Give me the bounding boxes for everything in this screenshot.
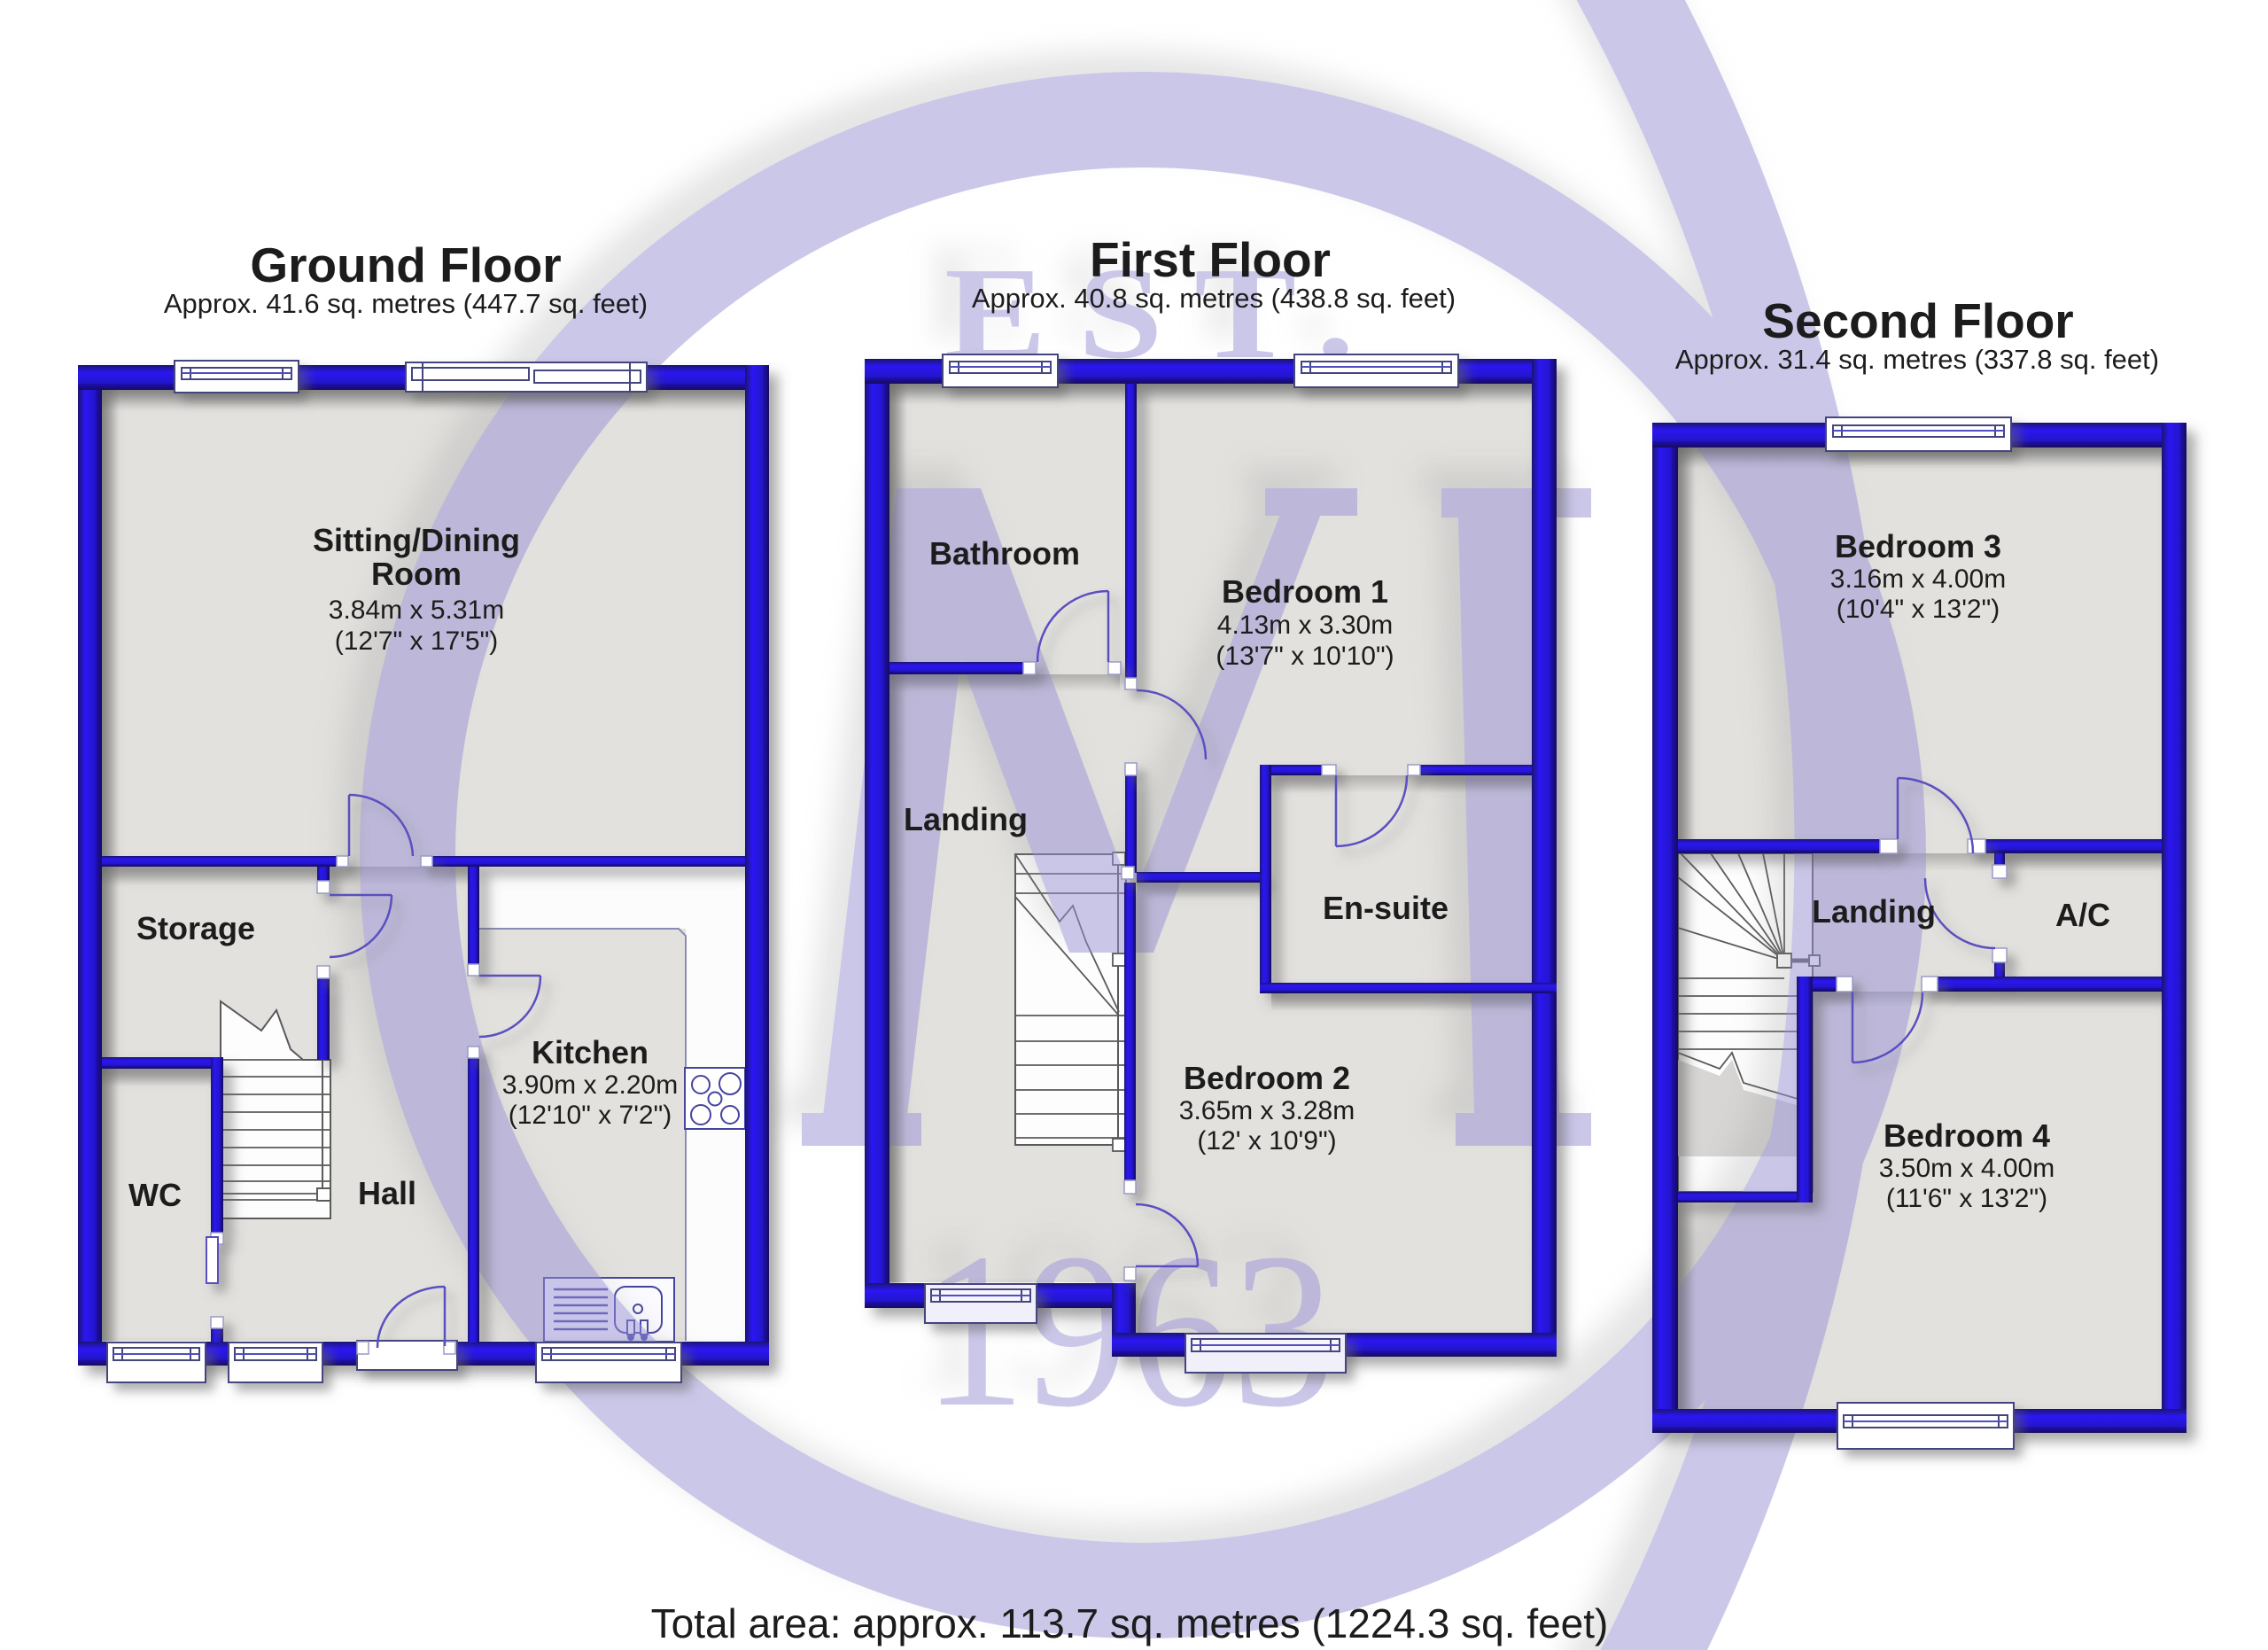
svg-text:(12'10" x 7'2"): (12'10" x 7'2") [509,1101,672,1130]
svg-text:3.65m x 3.28m: 3.65m x 3.28m [1179,1096,1355,1125]
svg-text:Storage: Storage [136,910,255,946]
svg-text:3.90m x 2.20m: 3.90m x 2.20m [502,1070,678,1100]
svg-text:Bedroom 2: Bedroom 2 [1184,1060,1350,1096]
svg-text:Room: Room [371,556,462,592]
svg-text:4.13m x 3.30m: 4.13m x 3.30m [1217,611,1393,640]
svg-text:En-suite: En-suite [1323,890,1449,926]
svg-text:Bedroom 3: Bedroom 3 [1835,528,2001,564]
svg-text:3.16m x 4.00m: 3.16m x 4.00m [1830,564,2006,594]
svg-text:(11'6" x 13'2"): (11'6" x 13'2") [1886,1184,2047,1213]
svg-text:Landing: Landing [1812,893,1936,930]
svg-text:3.84m x 5.31m: 3.84m x 5.31m [329,595,504,625]
svg-text:Bedroom 1: Bedroom 1 [1222,573,1388,610]
svg-text:(13'7" x 10'10"): (13'7" x 10'10") [1216,642,1394,671]
svg-text:Approx. 40.8 sq. metres (438.8: Approx. 40.8 sq. metres (438.8 sq. feet) [972,283,1456,314]
svg-text:Kitchen: Kitchen [532,1034,649,1070]
svg-text:Total area: approx. 113.7 sq.: Total area: approx. 113.7 sq. metres (12… [651,1600,1609,1646]
svg-text:(12' x 10'9"): (12' x 10'9") [1197,1126,1336,1156]
svg-text:3.50m x 4.00m: 3.50m x 4.00m [1879,1154,2054,1183]
svg-text:A/C: A/C [2055,897,2110,933]
svg-text:(10'4" x 13'2"): (10'4" x 13'2") [1837,595,2000,624]
svg-text:Bathroom: Bathroom [929,535,1080,572]
svg-text:Sitting/Dining: Sitting/Dining [313,522,520,558]
svg-text:Landing: Landing [904,801,1028,837]
svg-text:Second Floor: Second Floor [1762,293,2073,348]
svg-text:Approx. 31.4 sq. metres (337.8: Approx. 31.4 sq. metres (337.8 sq. feet) [1675,344,2159,375]
svg-text:WC: WC [128,1177,182,1213]
svg-text:Bedroom 4: Bedroom 4 [1884,1117,2050,1154]
svg-text:(12'7" x 17'5"): (12'7" x 17'5") [335,627,499,656]
svg-text:First Floor: First Floor [1090,232,1331,287]
svg-text:Ground Floor: Ground Floor [250,237,561,292]
svg-text:Hall: Hall [358,1175,416,1211]
svg-text:Approx. 41.6 sq. metres (447.7: Approx. 41.6 sq. metres (447.7 sq. feet) [164,288,648,319]
